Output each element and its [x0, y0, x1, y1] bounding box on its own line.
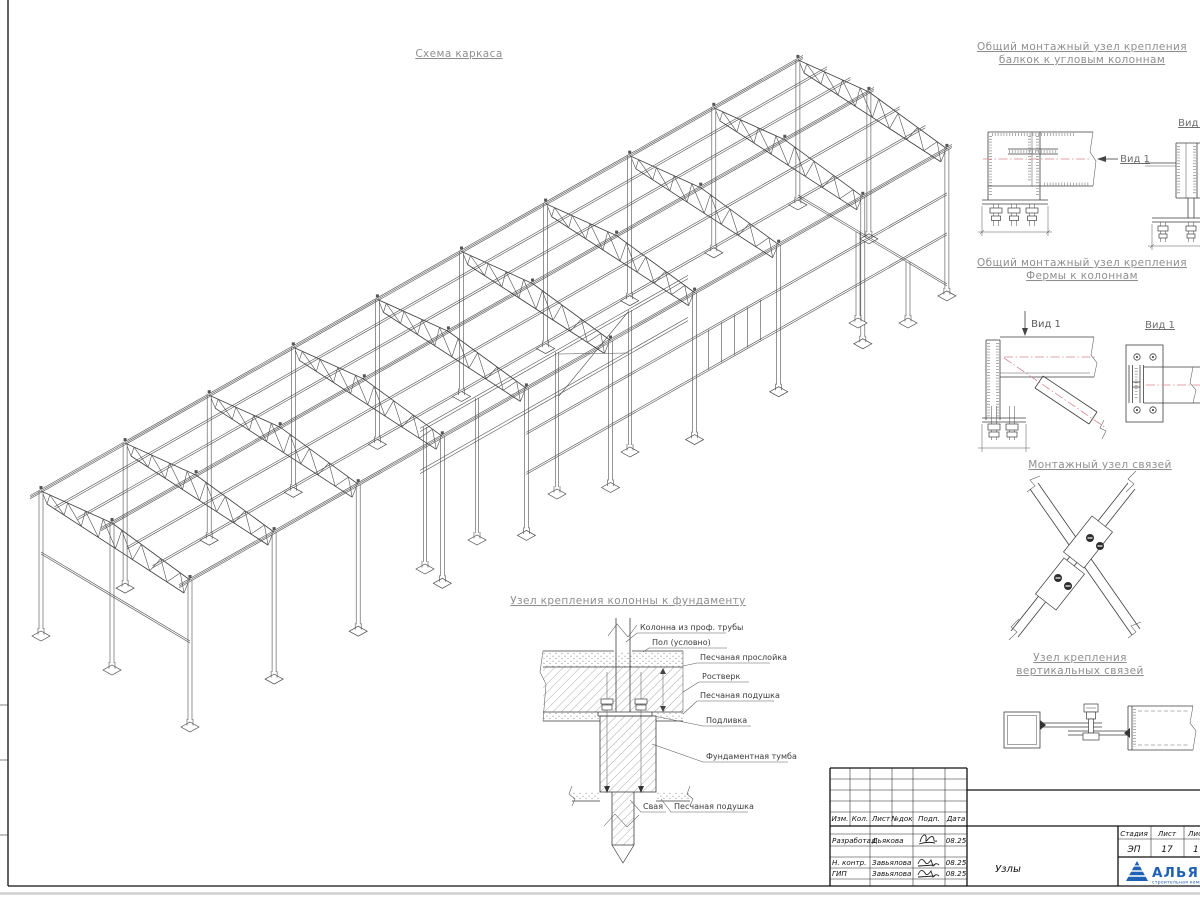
company-logo: АЛЬЯНС строительная компания: [1126, 861, 1200, 886]
tb-role-3: ГИП: [832, 869, 847, 878]
detail1-title-line1: Общий монтажный узел крепления: [977, 41, 1187, 53]
tb-header-data: Дата: [946, 814, 966, 823]
tb-header-podp: Подп.: [918, 814, 940, 823]
signature-2: [918, 859, 939, 866]
detail-brace-splice: Монтажный узел связей: [1009, 459, 1172, 640]
detail-truss-column-connection: Общий монтажный узел крепления Фермы к к…: [977, 257, 1200, 452]
tb-header-kol: Кол.: [852, 814, 868, 823]
tb-sheets-header: Листов: [1187, 829, 1200, 838]
detail2-title-line2: Фермы к колоннам: [1026, 270, 1138, 282]
splice-plate-lower: [1036, 558, 1085, 610]
view1-label-2: Вид 1: [1031, 319, 1061, 330]
company-subtitle: строительная компания: [1152, 881, 1200, 886]
callout-sand-layer: Песчаная прослойка: [700, 653, 787, 662]
title-block: Изм. Кол. Лист №док Подп. Дата Разработа…: [830, 768, 1200, 886]
view1-down-arrow-icon: [1022, 328, 1028, 336]
tb-name-1: Дьякова: [871, 836, 904, 845]
tb-role-2: Н. контр.: [832, 858, 866, 867]
detail-corner-beam-connection: Общий монтажный узел крепления балкок к …: [977, 41, 1200, 250]
callout-sand-cushion-2: Песчаная подушка: [674, 802, 754, 811]
sheet-canvas: Схема каркаса Общий монтажный узел крепл…: [0, 0, 1200, 900]
tb-stage-header: Стадия: [1120, 829, 1148, 838]
callout-floor: Пол (условно): [652, 638, 711, 647]
tb-stage-value: ЭП: [1126, 845, 1140, 855]
tb-doc-title: Узлы: [995, 864, 1021, 875]
splice-plate-upper: [1064, 516, 1113, 568]
signature-3: [918, 870, 939, 877]
frame-scheme-drawing: [30, 55, 956, 732]
view1-side-label: Вид 1: [1178, 118, 1200, 129]
tb-sheet-value: 17: [1161, 845, 1173, 855]
tb-role-1: Разработал: [832, 836, 876, 845]
callout-column: Колонна из проф. трубы: [640, 623, 743, 632]
view1-arrow-icon: [1097, 156, 1106, 162]
detail-vertical-tie-conn: Узел крепления вертикальных связей: [1004, 652, 1196, 750]
callout-grillage: Ростверк: [702, 672, 740, 681]
tb-header-ndok: №док: [890, 814, 913, 823]
detail1-title-line2: балкок к угловым колоннам: [999, 54, 1165, 66]
callout-sand-cushion: Песчаная подушка: [700, 691, 780, 700]
detail4-title-line1: Узел крепления: [1033, 652, 1127, 664]
detail1-side-view: Вид 1: [1145, 118, 1200, 250]
detail3-title: Монтажный узел связей: [1028, 459, 1172, 471]
tb-date-1: 08.25: [946, 836, 967, 845]
tb-date-3: 08.25: [946, 869, 967, 878]
tb-sheets-value: 1: [1193, 845, 1199, 855]
detail2-anchor-bolts: [988, 406, 1018, 440]
detail2-side-view: Вид 1: [1126, 320, 1200, 422]
tb-header-izm: Изм.: [832, 814, 849, 823]
tb-name-2: Завьялова: [872, 858, 911, 867]
detail1-anchor-bolts: [990, 204, 1038, 226]
main-title: Схема каркаса: [415, 48, 502, 60]
tb-header-list: Лист: [871, 814, 891, 823]
company-name: АЛЬЯНС: [1152, 865, 1200, 881]
callout-grout: Подливка: [706, 716, 747, 725]
tb-sheet-header: Лист: [1157, 829, 1177, 838]
callout-pedestal: Фундаментная тумба: [706, 752, 797, 761]
signature-1: [919, 835, 937, 844]
foundation-title: Узел крепления колонны к фундаменту: [510, 595, 746, 607]
tb-date-2: 08.25: [946, 858, 967, 867]
detail2-title-line1: Общий монтажный узел крепления: [977, 257, 1187, 269]
drawing-sheet: Схема каркаса Общий монтажный узел крепл…: [0, 0, 1200, 900]
view1-side-label-2: Вид 1: [1145, 320, 1175, 331]
detail4-title-line2: вертикальных связей: [1016, 665, 1143, 677]
tb-name-3: Завьялова: [872, 869, 911, 878]
callout-pile: Свая: [643, 802, 663, 811]
detail-column-foundation: Узел крепления колонны к фундаменту: [510, 595, 797, 863]
